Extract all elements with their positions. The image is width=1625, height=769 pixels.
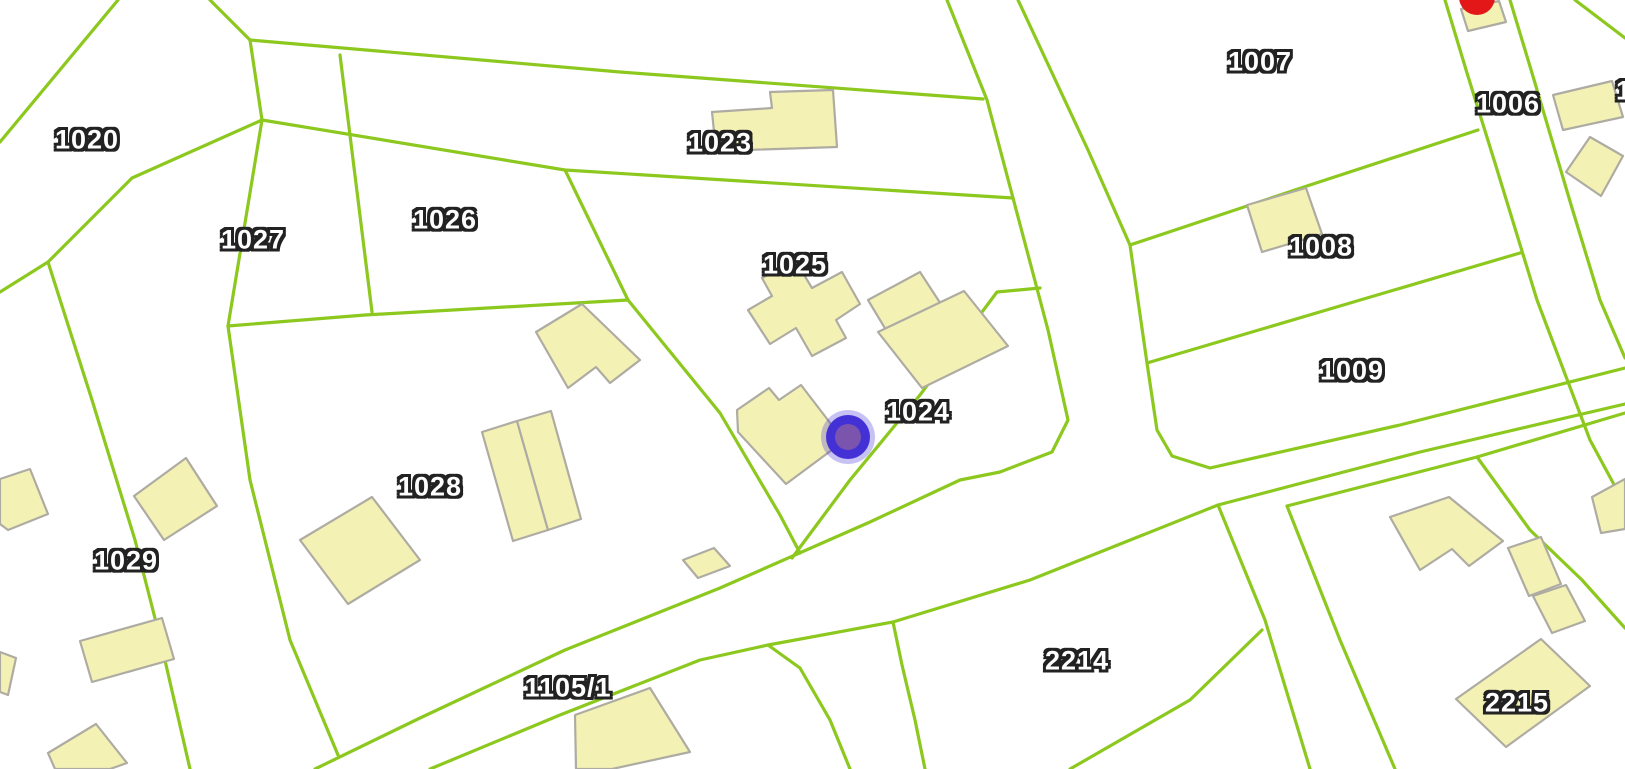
road-edge-line — [315, 0, 1068, 769]
building — [80, 618, 174, 682]
building — [575, 688, 690, 769]
parcel-boundary-line — [1070, 630, 1262, 769]
building — [1553, 81, 1623, 130]
location-marker — [821, 410, 875, 464]
building — [1247, 188, 1322, 252]
building — [536, 304, 640, 388]
parcel-boundary-line — [0, 262, 48, 292]
parcel-boundary-line — [210, 0, 262, 326]
building — [683, 548, 730, 578]
parcel-boundary-line — [893, 622, 925, 769]
parcel-boundary-line — [1575, 0, 1625, 38]
road-edge-line — [1287, 506, 1395, 769]
building — [134, 458, 217, 540]
parcel-boundary-line — [0, 0, 118, 142]
building — [1592, 479, 1625, 533]
building — [1508, 537, 1561, 596]
parcel-boundary-line — [250, 40, 983, 99]
parcel-boundary-line — [1147, 253, 1520, 363]
map-base — [0, 0, 1625, 769]
building — [1390, 497, 1503, 570]
road-edge-line — [1445, 0, 1625, 505]
parcel-boundary-line — [48, 120, 262, 262]
buildings-layer — [0, 1, 1625, 769]
parcel-boundary-line — [340, 55, 372, 312]
building — [1456, 639, 1590, 747]
road-edge-line — [1218, 505, 1310, 769]
building — [48, 724, 127, 769]
parcel-boundary-line — [768, 645, 850, 769]
building — [748, 260, 860, 356]
building — [0, 652, 16, 695]
building — [300, 497, 420, 604]
parcel-boundary-line — [565, 170, 628, 300]
building — [712, 90, 837, 151]
building — [0, 469, 48, 530]
building — [1566, 137, 1623, 196]
parcel-boundary-line — [262, 120, 1013, 198]
map-canvas[interactable]: 102010271026102310251024102810291105/122… — [0, 0, 1625, 769]
